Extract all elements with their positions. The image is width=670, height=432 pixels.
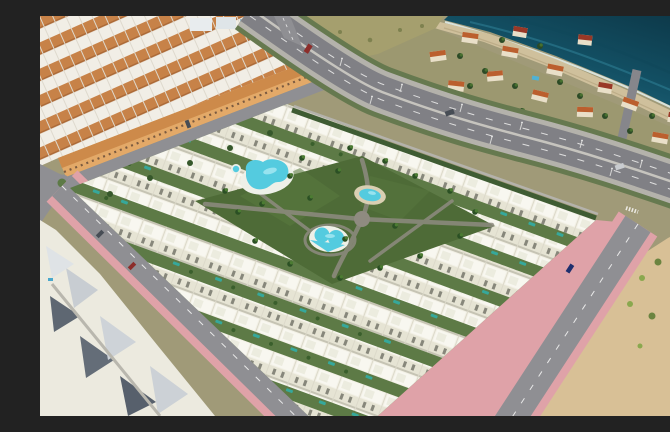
plaza <box>354 211 370 227</box>
house-pool <box>48 278 53 281</box>
aerial-photo: Aerial render of seafront townhouse deve… <box>40 16 670 416</box>
round-pool <box>231 164 241 174</box>
